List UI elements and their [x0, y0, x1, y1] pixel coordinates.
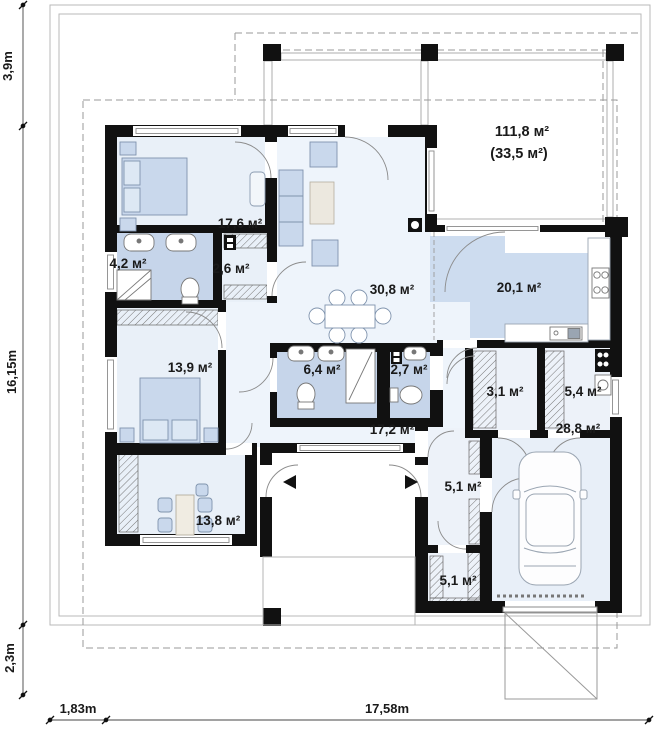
porch-pillar: [263, 608, 281, 626]
label-bedroom-2: 13,9 м²: [168, 360, 213, 375]
label-office: 13,8 м²: [196, 513, 241, 528]
floor-plan-drawing: 111,8 м² (33,5 м²) 17,6 м² 4,2 м² 2,6 м²…: [0, 0, 655, 742]
label-garage: 28,8 м²: [556, 421, 601, 436]
label-kitchen: 20,1 м²: [497, 280, 542, 295]
label-hall: 5,1 м²: [445, 479, 483, 494]
label-terrace: 111,8 м²: [495, 124, 549, 140]
wardrobe-shelf-bottom: [224, 285, 267, 299]
bedroom2-wardrobe: [117, 310, 218, 325]
armchair: [312, 240, 338, 266]
porch-slab: [263, 557, 415, 625]
floor-plan: 111,8 м² (33,5 м²) 17,6 м² 4,2 м² 2,6 м²…: [0, 0, 655, 742]
hall-wardrobe-bottom: [469, 499, 480, 544]
label-living-room: 30,8 м²: [370, 282, 415, 297]
label-bedroom-1: 17,6 м²: [218, 216, 263, 231]
pillar-left: [263, 44, 281, 61]
rug: [310, 182, 334, 224]
entrance-arrows: [283, 475, 418, 489]
entrance-arrow-left-icon: [283, 475, 296, 489]
utility-stove-icon: [595, 349, 611, 372]
label-pantry: 3,1 м²: [487, 384, 525, 399]
office-wardrobe: [119, 452, 138, 532]
pillar-right: [606, 44, 624, 61]
tv-unit: [310, 142, 337, 167]
label-utility: 5,4 м²: [565, 384, 603, 399]
label-corridor: 17,2 м²: [370, 422, 415, 437]
dim-left-middle: 16,15m: [4, 350, 19, 394]
label-wardrobe: 2,6 м²: [213, 261, 251, 276]
toilet3-icon: [400, 386, 422, 404]
label-bathroom-1: 4,2 м²: [110, 256, 148, 271]
garage-door-leaf: [503, 607, 597, 612]
label-terrace-secondary: (33,5 м²): [490, 146, 548, 162]
dim-bottom-left: 1,83m: [60, 701, 97, 716]
label-wc: 2,7 м²: [391, 362, 429, 377]
kitchen-sink-icon: [550, 327, 582, 340]
dim-bottom-right: 17,58m: [365, 701, 409, 716]
dim-left-bottom: 2,3m: [2, 643, 17, 673]
hall-wardrobe-top: [469, 441, 480, 474]
car: [513, 452, 587, 585]
dim-left-top: 3,9m: [0, 51, 15, 81]
stove-icon: [592, 268, 609, 298]
sofa: [279, 170, 303, 246]
utility-shelf: [543, 351, 564, 428]
label-bathroom-2: 6,4 м²: [304, 362, 342, 377]
wardrobe-cabinet: [250, 172, 265, 206]
label-storage: 5,1 м²: [440, 573, 478, 588]
pillar-middle: [421, 44, 438, 61]
